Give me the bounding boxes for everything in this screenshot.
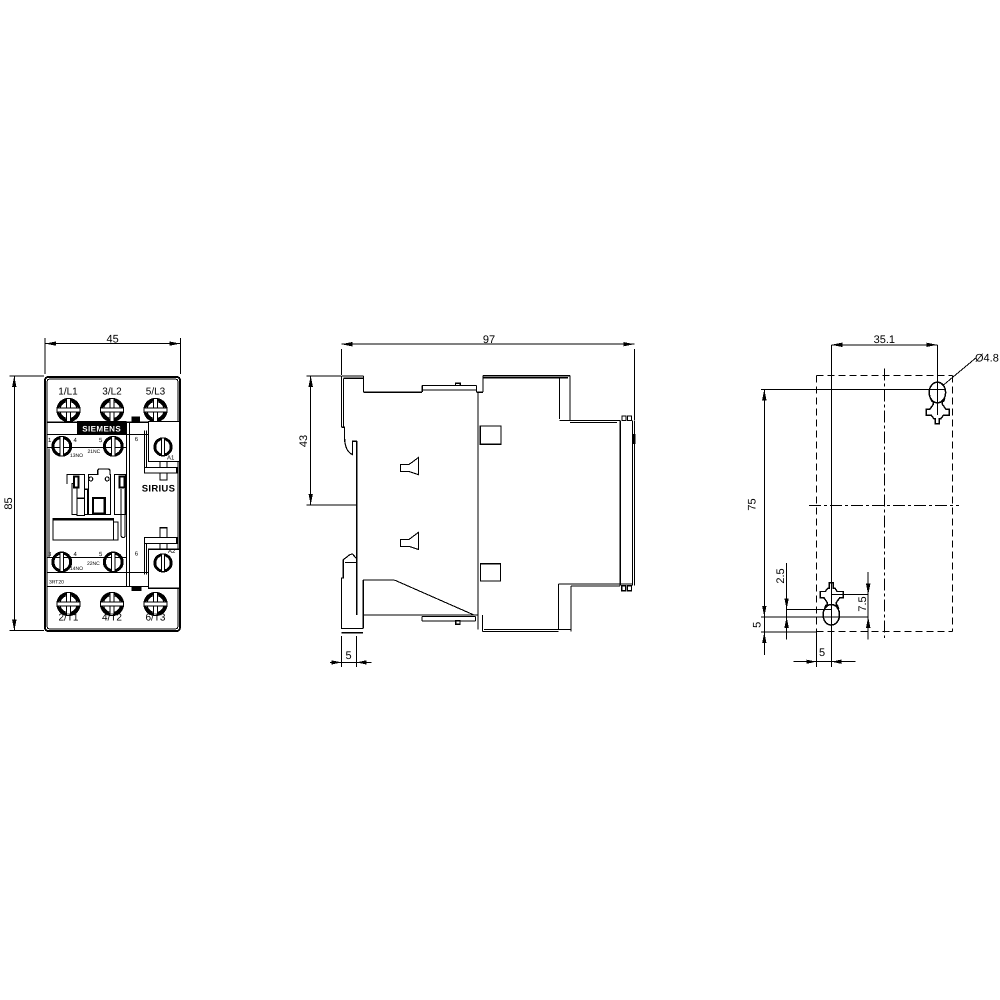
svg-text:3RT20: 3RT20 [49,580,64,586]
svg-text:14NO: 14NO [70,566,83,572]
svg-text:2.5: 2.5 [775,568,787,583]
svg-text:13NO: 13NO [70,453,83,459]
svg-text:2/T1: 2/T1 [58,613,78,624]
svg-text:4/T2: 4/T2 [102,613,122,624]
svg-text:45: 45 [106,334,118,346]
svg-text:1/L1: 1/L1 [58,387,78,398]
svg-text:SIRIUS: SIRIUS [142,483,175,494]
svg-text:21NC: 21NC [88,449,101,455]
svg-text:97: 97 [483,334,495,346]
svg-text:3/L2: 3/L2 [102,387,122,398]
svg-text:75: 75 [747,498,759,510]
svg-text:6/T3: 6/T3 [145,613,165,624]
svg-text:85: 85 [3,497,15,509]
svg-text:7.5: 7.5 [857,596,869,611]
svg-text:5: 5 [819,647,825,659]
svg-text:A1: A1 [167,455,175,462]
svg-text:22NC: 22NC [87,561,100,567]
svg-text:5: 5 [752,622,764,628]
svg-text:35.1: 35.1 [874,334,895,346]
svg-text:5: 5 [345,650,351,662]
svg-text:5/L3: 5/L3 [146,387,166,398]
svg-text:SIEMENS: SIEMENS [82,425,121,434]
svg-text:A2: A2 [168,548,176,555]
svg-text:43: 43 [298,435,310,447]
svg-text:Ø4.8: Ø4.8 [975,353,999,365]
